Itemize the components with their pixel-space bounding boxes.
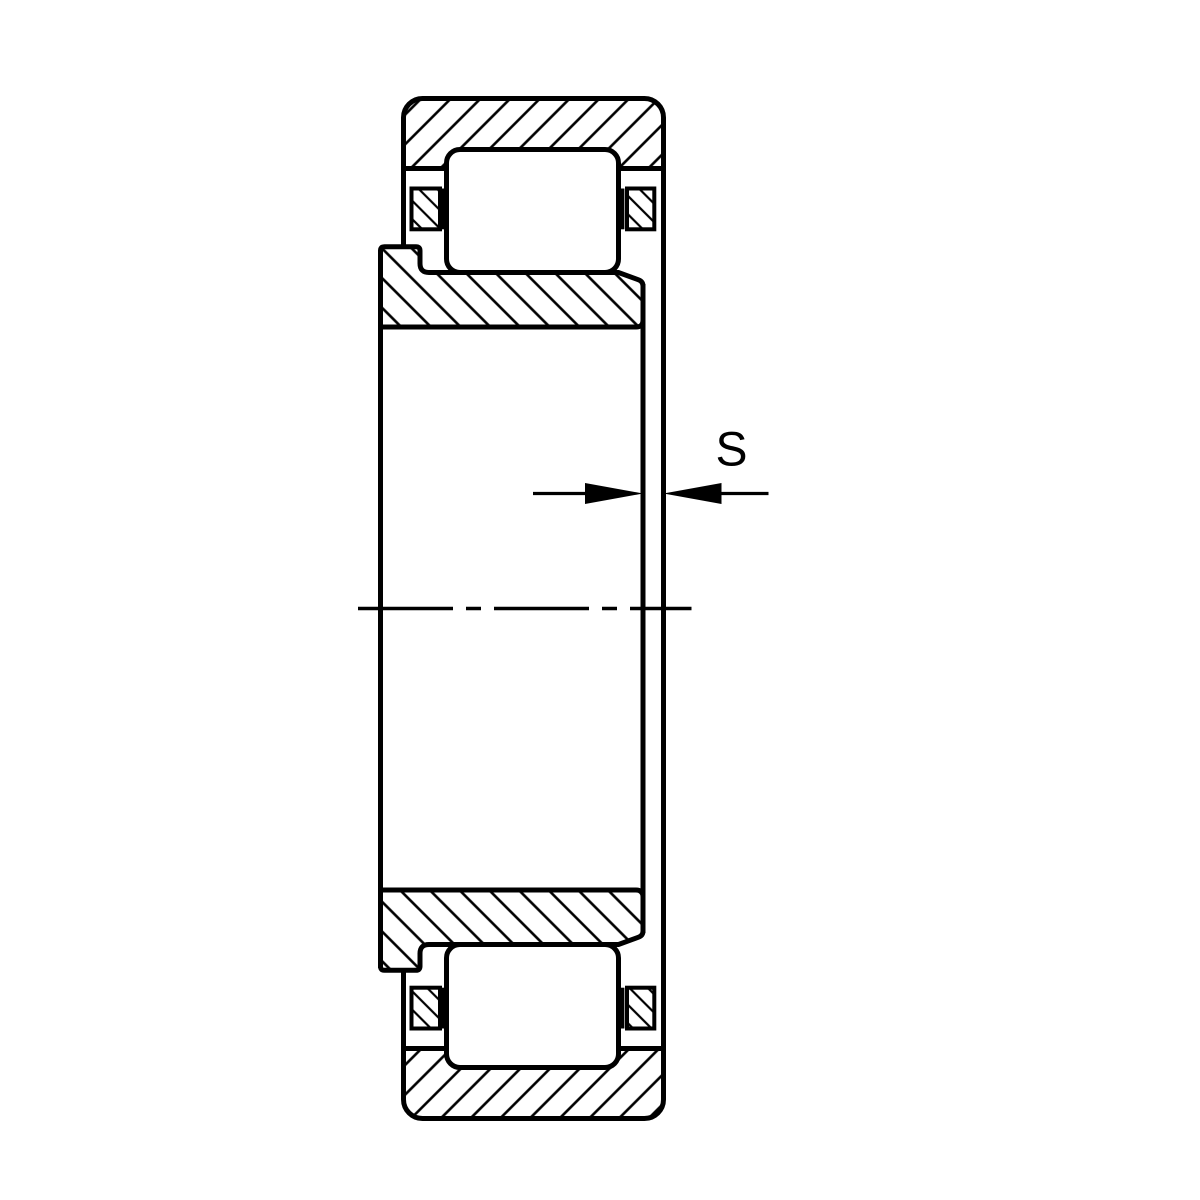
cage-section-top-left <box>412 189 441 230</box>
cage-section-bottom-left <box>412 988 441 1029</box>
dimension-s-label: S <box>715 424 747 477</box>
roller-top <box>447 150 619 273</box>
cage-section-top-right <box>627 189 654 230</box>
drawing-canvas: S <box>0 0 1200 1200</box>
cage-section-bottom-right <box>627 988 654 1029</box>
roller-bottom <box>447 945 619 1068</box>
bearing-section-drawing: S <box>0 0 1200 1200</box>
dimension-arrowhead-left <box>585 483 643 504</box>
dimension-arrowhead-right <box>664 483 722 504</box>
